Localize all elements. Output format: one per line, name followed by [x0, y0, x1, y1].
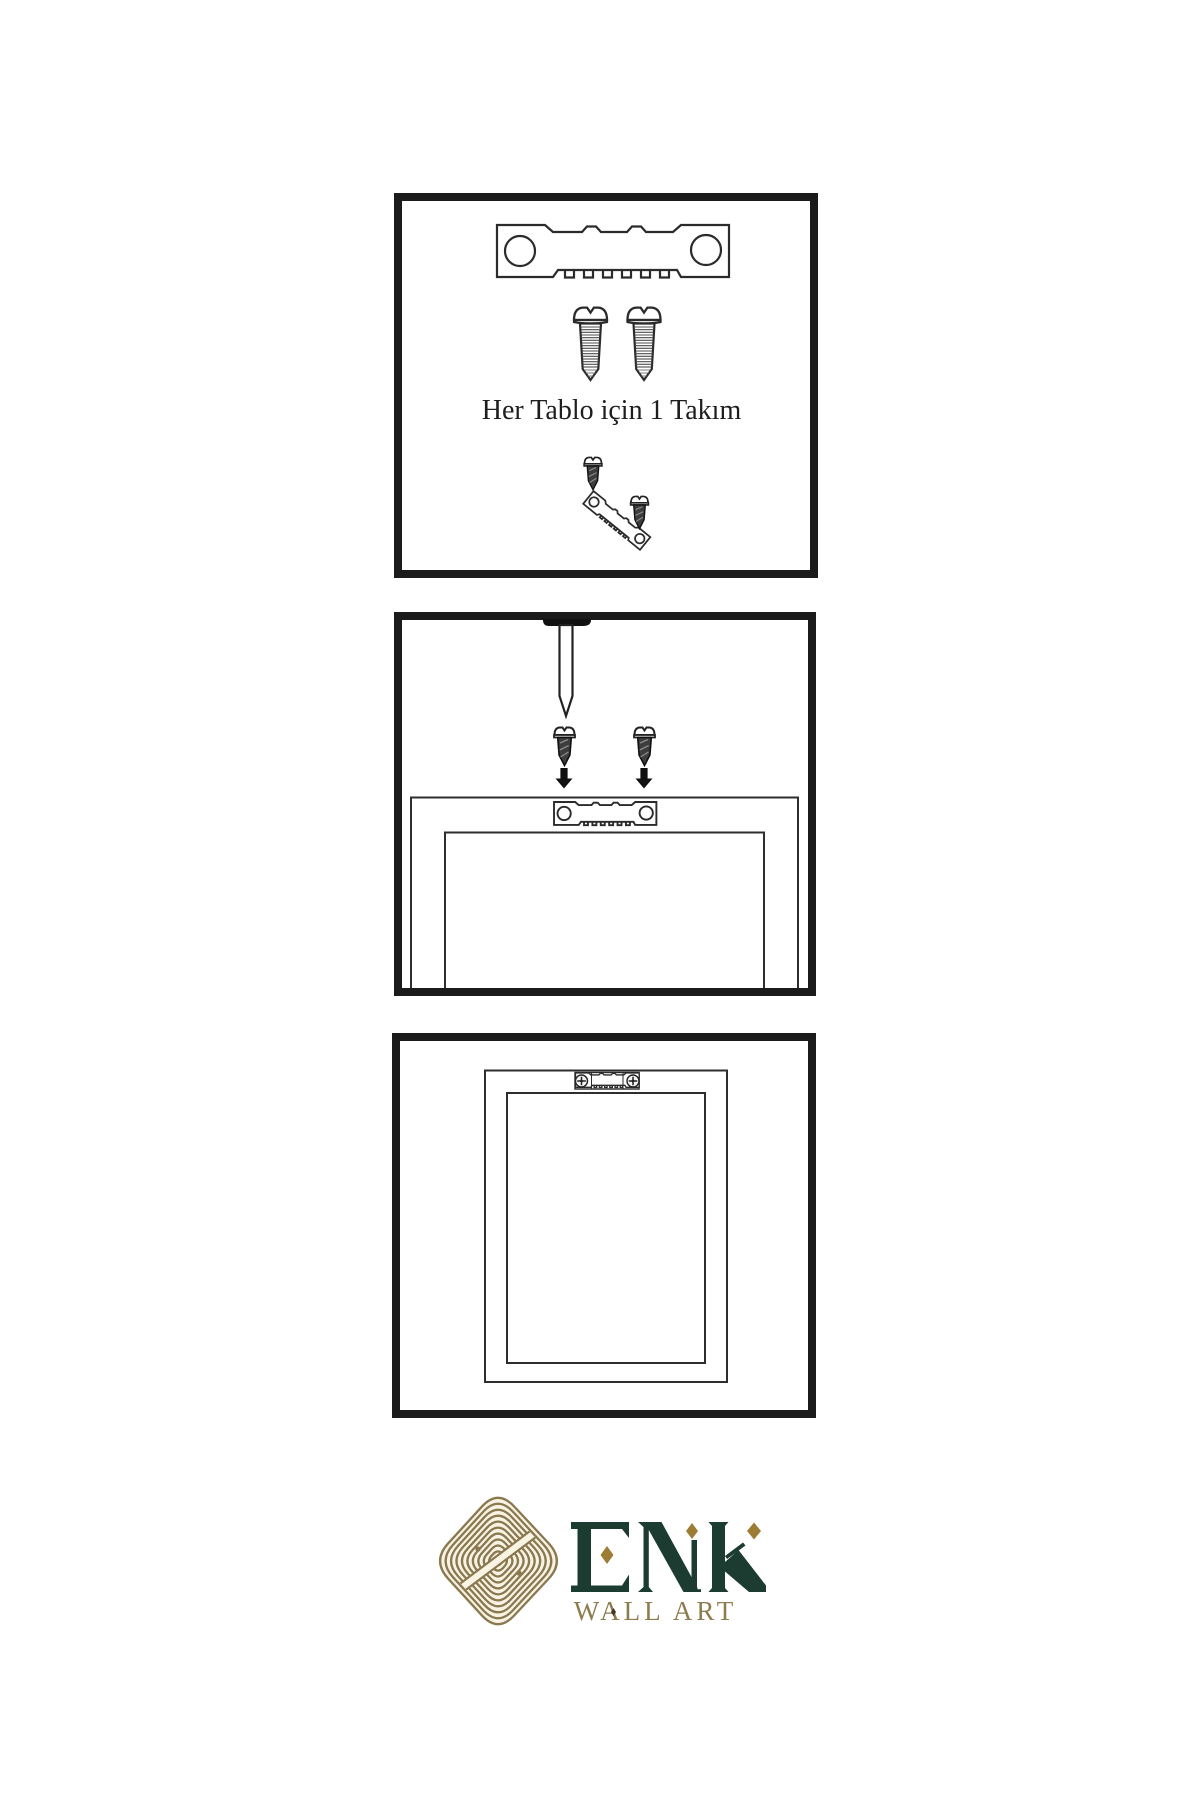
svg-text:Her Tablo için 1 Takım: Her Tablo için 1 Takım — [482, 395, 742, 426]
svg-text:WALL ART: WALL ART — [574, 1596, 738, 1626]
